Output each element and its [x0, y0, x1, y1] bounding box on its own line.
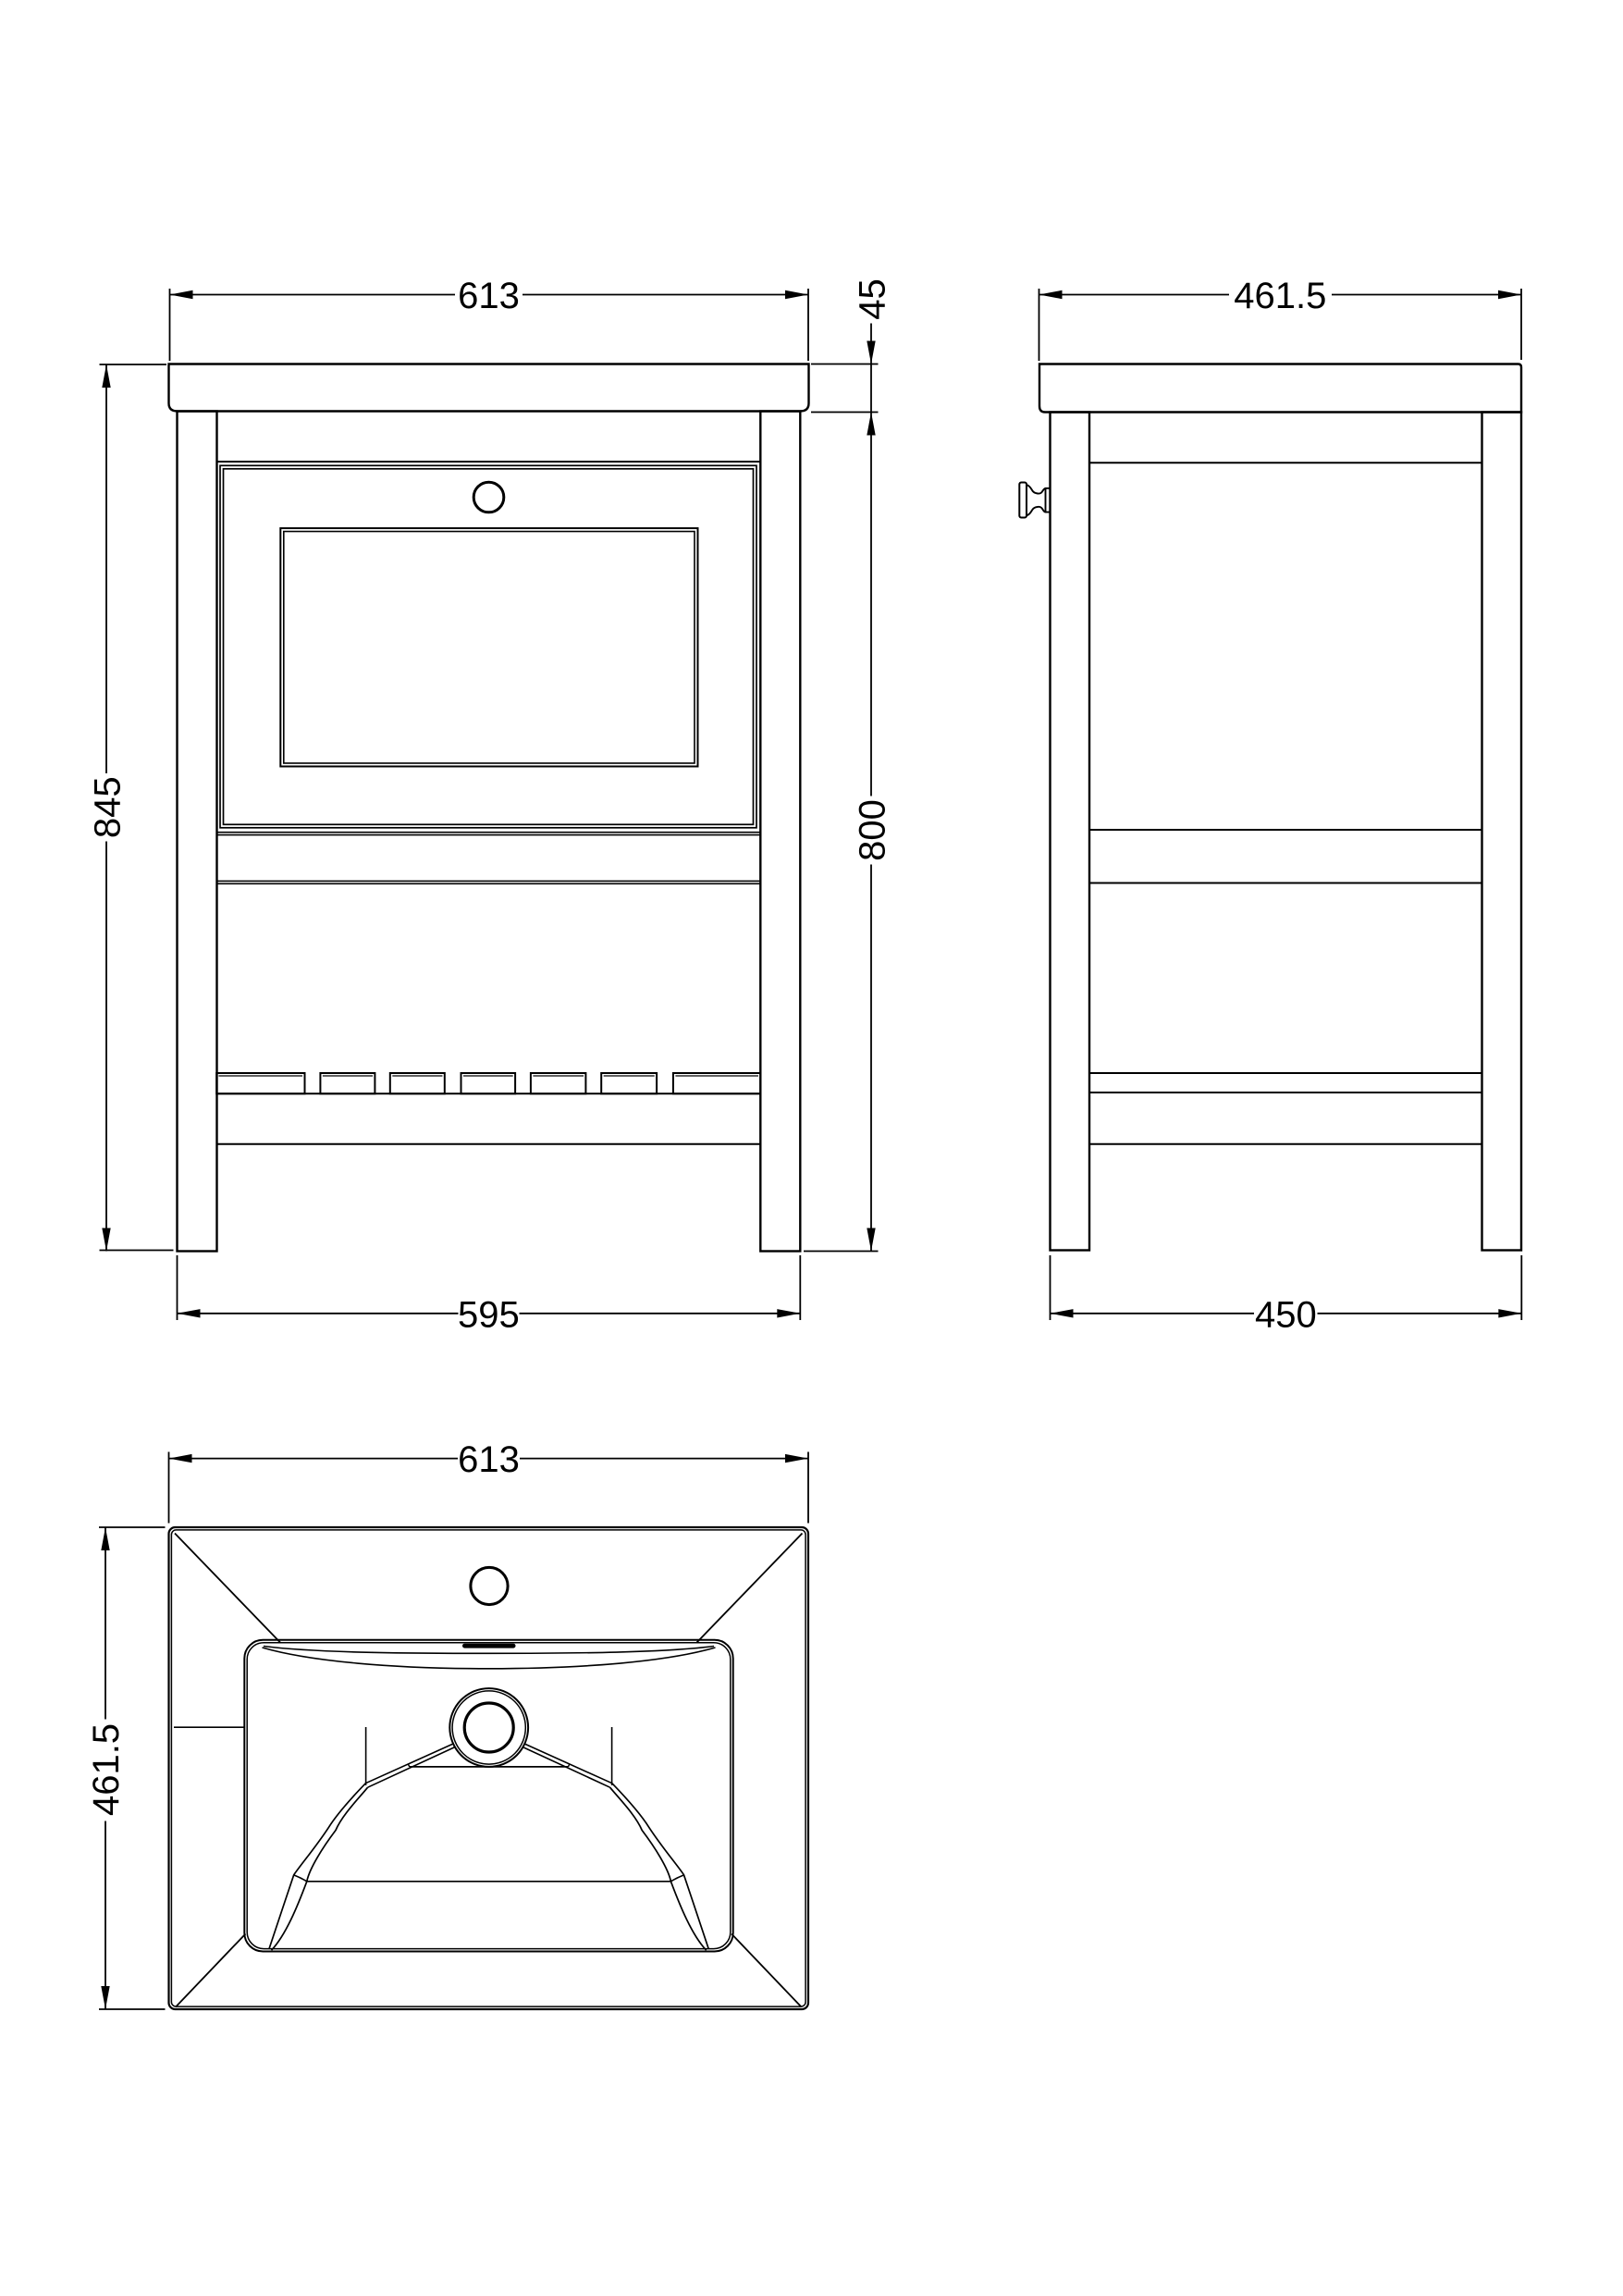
svg-text:461.5: 461.5 [86, 1723, 127, 1816]
svg-text:613: 613 [458, 276, 520, 316]
svg-text:800: 800 [853, 799, 893, 861]
svg-text:595: 595 [458, 1294, 520, 1335]
svg-text:450: 450 [1255, 1294, 1317, 1335]
svg-text:45: 45 [853, 278, 893, 320]
svg-text:613: 613 [458, 1439, 520, 1480]
svg-text:845: 845 [88, 776, 129, 838]
svg-text:461.5: 461.5 [1234, 276, 1326, 316]
